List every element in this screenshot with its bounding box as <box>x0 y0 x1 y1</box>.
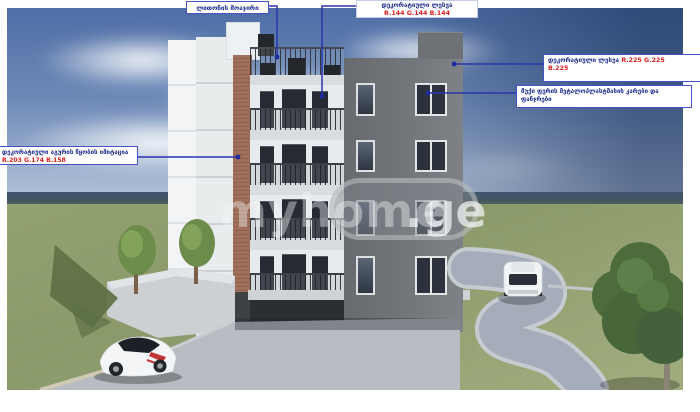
label-text: დეკორატიული ლესვა <box>548 57 619 64</box>
label-plaster-light: დეკორატიული ლესვა R.225 G.225 B.225 <box>543 54 700 82</box>
label-rgb-value: R.225 G.225 <box>621 57 664 64</box>
label-brick-imitation: დეკორატიული აგურის წყობის იმიტაცია R.203… <box>0 146 138 165</box>
label-text: დეკორატიული აგურის წყობის იმიტაცია <box>2 149 134 157</box>
label-rgb-value: R.203 G.174 B.158 <box>2 157 134 165</box>
label-text: ლითონის მოაჯირი <box>196 4 258 12</box>
label-rgb-value: B.225 <box>548 65 696 73</box>
label-metal-railing: ლითონის მოაჯირი <box>186 1 269 14</box>
label-text: დეკორატიული ლესვა <box>357 2 477 10</box>
label-rgb-value: R.144 G.144 B.144 <box>357 10 477 18</box>
annotated-building-render: myhome .ge ლითონის მოაჯირი დეკორატიული ლ… <box>0 0 700 412</box>
label-text: ფანჯრები <box>521 96 687 104</box>
label-dark-openings: მუქი ფერის მეტალოპლასტმასის კარები და ფა… <box>516 85 692 108</box>
label-plaster-gray: დეკორატიული ლესვა R.144 G.144 B.144 <box>356 0 478 18</box>
label-text: მუქი ფერის მეტალოპლასტმასის კარები და <box>521 88 687 96</box>
